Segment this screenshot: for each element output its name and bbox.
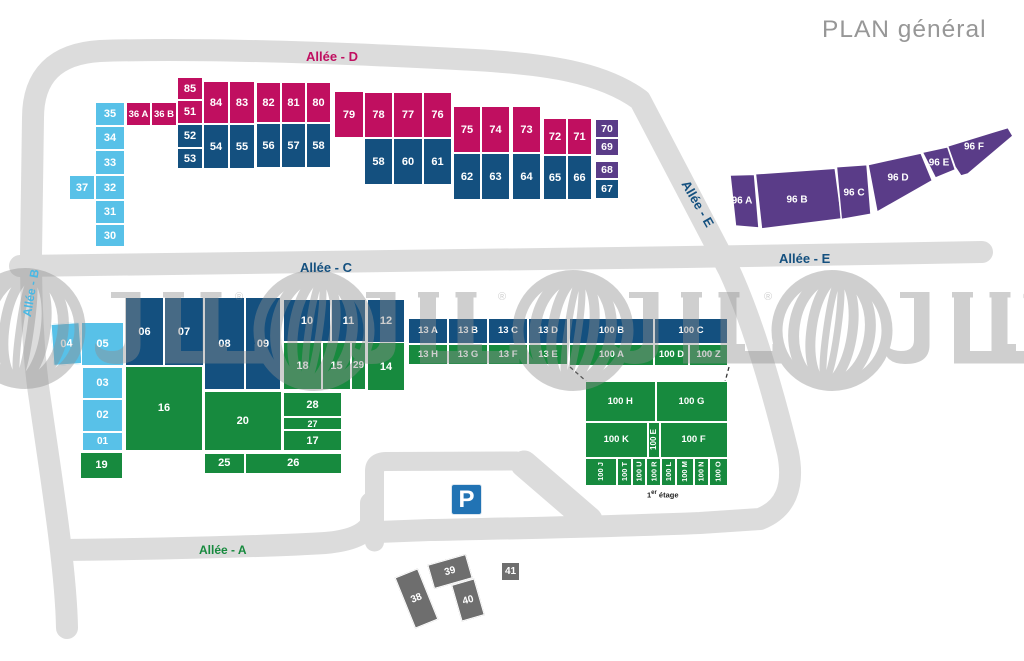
svg-text:96 A: 96 A [732, 196, 753, 207]
svg-text:96 B: 96 B [786, 195, 807, 206]
svg-text:96 C: 96 C [843, 188, 864, 199]
svg-text:96 F: 96 F [964, 142, 984, 153]
svg-text:96 D: 96 D [887, 173, 908, 184]
svg-text:96 E: 96 E [929, 158, 950, 169]
